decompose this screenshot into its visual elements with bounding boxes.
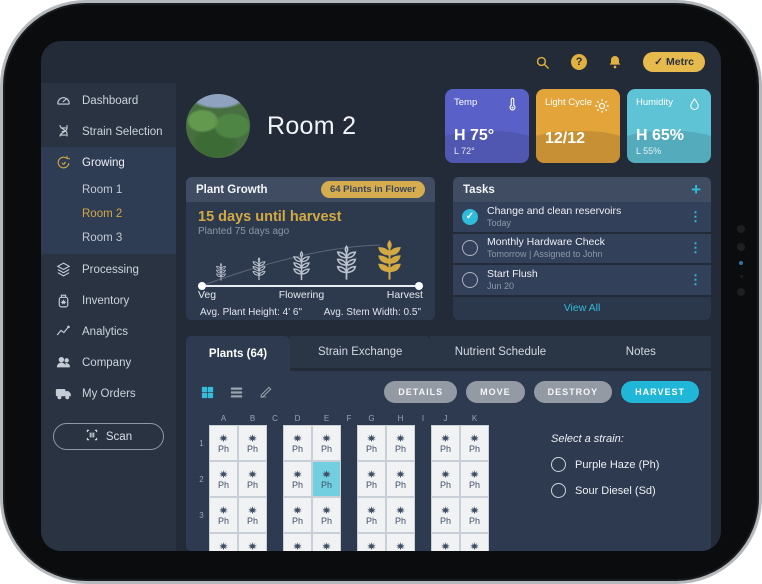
radio-icon[interactable] <box>551 483 566 498</box>
help-icon[interactable]: ? <box>571 54 587 70</box>
app-screen: ? ✓Metrc DashboardStrain SelectionGrowin… <box>41 41 721 551</box>
grid-col-header-i: I <box>415 414 431 423</box>
layers-icon <box>55 261 72 278</box>
plant-cell-d1[interactable]: Ph <box>283 425 312 461</box>
plant-cell-k2[interactable]: Ph <box>460 461 489 497</box>
grid-col-header-e: E <box>312 414 341 423</box>
main-content: Room 2 TempH 75°L 72°Light Cycle12/12Hum… <box>176 83 721 551</box>
light-cycle-card[interactable]: Light Cycle12/12 <box>536 89 620 163</box>
room-header: Room 2 TempH 75°L 72°Light Cycle12/12Hum… <box>186 89 711 163</box>
bell-icon[interactable] <box>607 54 623 70</box>
grid-col-header-f: F <box>341 414 357 423</box>
grid-col-header-b: B <box>238 414 267 423</box>
sidebar-item-inventory[interactable]: Inventory <box>41 285 176 316</box>
cannabis-leaf-icon <box>365 541 378 552</box>
cannabis-leaf-icon <box>291 541 304 552</box>
plant-cell-b1[interactable]: Ph <box>238 425 267 461</box>
plant-cell-d4[interactable]: Ph <box>283 533 312 551</box>
tasks-card: Tasks + ✓Change and clean reservoirsToda… <box>453 177 711 320</box>
grid-row-header-2: 2 <box>194 461 209 497</box>
sidebar-item-growing[interactable]: Growing <box>41 147 176 178</box>
tasks-title: Tasks <box>463 184 495 196</box>
plant-cell-g2[interactable]: Ph <box>357 461 386 497</box>
grid-col-header-d: D <box>283 414 312 423</box>
plant-cell-e2[interactable]: Ph <box>312 461 341 497</box>
plant-cell-h2[interactable]: Ph <box>386 461 415 497</box>
metrc-button[interactable]: ✓Metrc <box>643 52 705 72</box>
cannabis-leaf-icon <box>439 541 452 552</box>
task-menu-icon[interactable]: ⋮ <box>689 272 702 288</box>
harvest-button[interactable]: HARVEST <box>621 381 699 403</box>
dna-icon <box>55 123 72 140</box>
plant-cell-g1[interactable]: Ph <box>357 425 386 461</box>
plant-cell-j2[interactable]: Ph <box>431 461 460 497</box>
harvest-countdown: 15 days until harvest <box>198 209 423 225</box>
plant-cell-j4[interactable]: Ph <box>431 533 460 551</box>
plant-cell-d2[interactable]: Ph <box>283 461 312 497</box>
plant-cell-b4[interactable]: Ph <box>238 533 267 551</box>
plant-growth-card: Plant Growth 64 Plants in Flower 15 days… <box>186 177 435 320</box>
strain-selector-title: Select a strain: <box>551 433 699 445</box>
planted-ago: Planted 75 days ago <box>198 226 423 237</box>
grid-row-header-1: 1 <box>194 425 209 461</box>
plant-cell-d3[interactable]: Ph <box>283 497 312 533</box>
grid-col-header-a: A <box>209 414 238 423</box>
task-unchecked-icon[interactable] <box>462 240 478 256</box>
destroy-button[interactable]: DESTROY <box>534 381 613 403</box>
plant-cell-e4[interactable]: Ph <box>312 533 341 551</box>
sidebar-item-room-2[interactable]: Room 2 <box>41 202 176 226</box>
plant-cell-k1[interactable]: Ph <box>460 425 489 461</box>
task-row-monthly-hardware-check[interactable]: Monthly Hardware CheckTomorrow | Assigne… <box>453 234 711 266</box>
sidebar-group-growing: GrowingRoom 1Room 2Room 3 <box>41 147 176 254</box>
plant-cell-e3[interactable]: Ph <box>312 497 341 533</box>
avg-plant-height: Avg. Plant Height: 4' 6" <box>200 307 302 318</box>
tablet-device: ? ✓Metrc DashboardStrain SelectionGrowin… <box>0 0 762 584</box>
grid-row-header-3: 3 <box>194 497 209 533</box>
droplet-icon <box>687 97 702 115</box>
strain-selector: Select a strain: Purple Haze (Ph)Sour Di… <box>551 411 699 551</box>
gauge-icon <box>55 92 72 109</box>
task-unchecked-icon[interactable] <box>462 272 478 288</box>
search-icon[interactable] <box>534 54 551 71</box>
cannabis-leaf-icon <box>320 541 333 552</box>
plant-cell-b2[interactable]: Ph <box>238 461 267 497</box>
cannabis-leaf-icon <box>246 541 259 552</box>
task-checked-icon[interactable]: ✓ <box>462 209 478 225</box>
room-photo <box>186 94 250 158</box>
grid-col-header-g: G <box>357 414 386 423</box>
radio-icon[interactable] <box>551 457 566 472</box>
growth-timeline <box>198 239 423 301</box>
topbar: ? ✓Metrc <box>41 41 721 83</box>
plant-cell-a1[interactable]: Ph <box>209 425 238 461</box>
sidebar-item-analytics[interactable]: Analytics <box>41 316 176 347</box>
scan-icon <box>85 428 99 445</box>
scan-button[interactable]: Scan <box>53 423 164 450</box>
tab-bar: Plants (64)Strain ExchangeNutrient Sched… <box>186 336 711 371</box>
strain-option-sour-diesel-sd[interactable]: Sour Diesel (Sd) <box>551 483 699 498</box>
growth-stage-3 <box>290 251 313 286</box>
sidebar-item-company[interactable]: Company <box>41 347 176 378</box>
side-camera-dots <box>735 225 747 296</box>
plants-in-flower-badge: 64 Plants in Flower <box>321 181 425 198</box>
tab-notes[interactable]: Notes <box>571 336 711 368</box>
plant-cell-a4[interactable]: Ph <box>209 533 238 551</box>
plant-cell-h4[interactable]: Ph <box>386 533 415 551</box>
plant-cell-k4[interactable]: Ph <box>460 533 489 551</box>
task-menu-icon[interactable]: ⋮ <box>689 240 702 256</box>
cannabis-leaf-icon <box>217 541 230 552</box>
view-all-tasks-link[interactable]: View All <box>564 302 601 314</box>
sidebar-item-room-1[interactable]: Room 1 <box>41 178 176 202</box>
tab-strain-exchange[interactable]: Strain Exchange <box>290 336 430 368</box>
details-button[interactable]: DETAILS <box>384 381 457 403</box>
plant-cell-e1[interactable]: Ph <box>312 425 341 461</box>
cannabis-leaf-icon <box>394 541 407 552</box>
plants-tab-panel: DETAILSMOVEDESTROYHARVEST ABCDEFGHIJK1Ph… <box>186 371 711 551</box>
sidebar-item-processing[interactable]: Processing <box>41 254 176 285</box>
grid-col-header-j: J <box>431 414 460 423</box>
growth-stage-2 <box>250 257 268 286</box>
sidebar-item-strain-selection[interactable]: Strain Selection <box>41 116 176 147</box>
pen-icon[interactable] <box>258 384 274 400</box>
temp-card[interactable]: TempH 75°L 72° <box>445 89 529 163</box>
avg-stem-width: Avg. Stem Width: 0.5" <box>324 307 421 318</box>
environment-cards: TempH 75°L 72°Light Cycle12/12HumidityH … <box>445 89 711 163</box>
strain-option-purple-haze-ph[interactable]: Purple Haze (Ph) <box>551 457 699 472</box>
list-view-icon[interactable] <box>229 385 244 400</box>
task-menu-icon[interactable]: ⋮ <box>689 209 702 225</box>
task-row-start-flush[interactable]: Start FlushJun 20⋮ <box>453 265 711 297</box>
plants-toolbar: DETAILSMOVEDESTROYHARVEST <box>186 371 711 409</box>
growth-stage-1 <box>214 263 228 286</box>
tab-nutrient-schedule[interactable]: Nutrient Schedule <box>430 336 570 368</box>
growth-stage-5-current <box>374 240 405 286</box>
sun-icon <box>593 97 611 118</box>
plant-cell-j3[interactable]: Ph <box>431 497 460 533</box>
task-row-change-and-clean-reservoirs[interactable]: ✓Change and clean reservoirsToday⋮ <box>453 202 711 234</box>
page-title: Room 2 <box>267 112 356 141</box>
people-icon <box>55 354 72 371</box>
grid-col-header-h: H <box>386 414 415 423</box>
grid-col-header-k: K <box>460 414 489 423</box>
plant-cell-g4[interactable]: Ph <box>357 533 386 551</box>
grid-view-icon[interactable] <box>200 385 215 400</box>
sidebar-item-room-3[interactable]: Room 3 <box>41 226 176 250</box>
plant-cell-k3[interactable]: Ph <box>460 497 489 533</box>
sidebar-item-my-orders[interactable]: My Orders <box>41 378 176 409</box>
plant-cell-b3[interactable]: Ph <box>238 497 267 533</box>
grid-row-header-4 <box>194 533 209 551</box>
plant-cell-h3[interactable]: Ph <box>386 497 415 533</box>
timeline-end-dot <box>415 282 423 290</box>
tab-plants-64[interactable]: Plants (64) <box>186 336 290 371</box>
growth-stage-4 <box>333 245 360 286</box>
check-icon: ✓ <box>654 56 663 68</box>
plant-cell-g3[interactable]: Ph <box>357 497 386 533</box>
grow-icon <box>55 154 72 171</box>
add-task-button[interactable]: + <box>691 181 701 198</box>
cannabis-leaf-icon <box>468 541 481 552</box>
plant-cell-j1[interactable]: Ph <box>431 425 460 461</box>
plant-cell-h1[interactable]: Ph <box>386 425 415 461</box>
move-button[interactable]: MOVE <box>466 381 525 403</box>
plant-grid: ABCDEFGHIJK1PhPhPhPhPhPhPhPh2PhPhPhPhPhP… <box>194 411 489 551</box>
timeline-start-dot <box>198 282 206 290</box>
humidity-card[interactable]: HumidityH 65%L 55% <box>627 89 711 163</box>
truck-icon <box>55 385 72 402</box>
chart-icon <box>55 323 72 340</box>
thermometer-icon <box>505 97 520 115</box>
sidebar-item-dashboard[interactable]: Dashboard <box>41 85 176 116</box>
plant-cell-a2[interactable]: Ph <box>209 461 238 497</box>
jar-icon <box>55 292 72 309</box>
grid-col-header-c: C <box>267 414 283 423</box>
plant-growth-title: Plant Growth <box>196 184 268 196</box>
plant-cell-a3[interactable]: Ph <box>209 497 238 533</box>
sidebar: DashboardStrain SelectionGrowingRoom 1Ro… <box>41 83 176 551</box>
